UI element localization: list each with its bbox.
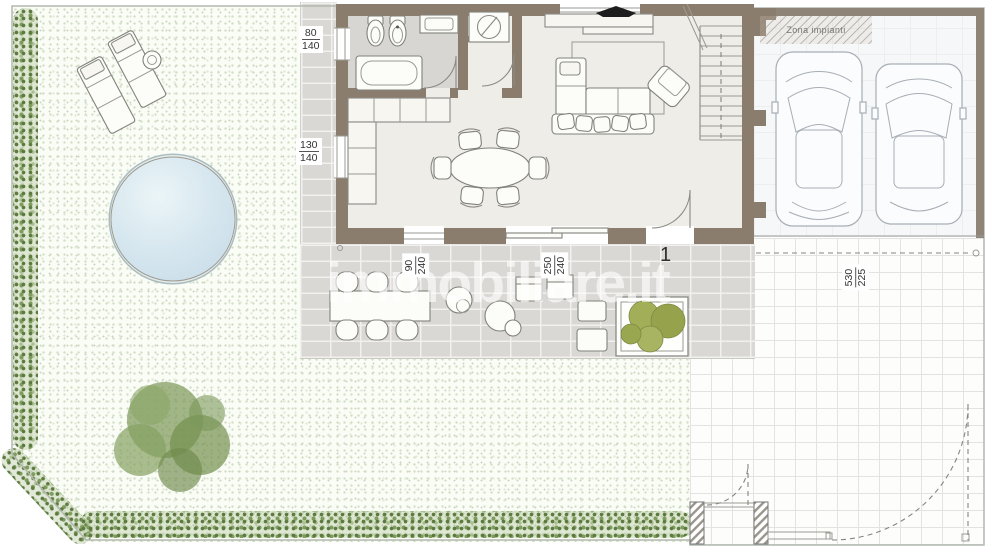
dim-kitchen-window: 130 140: [296, 138, 322, 165]
toilet-icon: [389, 16, 406, 46]
bathtub-icon: [356, 56, 422, 90]
driveway-gate: [768, 404, 969, 541]
dim-sliding-door: 250 240: [541, 253, 568, 279]
sliding-door: [506, 226, 608, 244]
pool-rim: [111, 157, 235, 281]
garden-tree: [114, 382, 230, 492]
boundary-marker: [973, 250, 979, 256]
tv-cabinet: [545, 14, 653, 34]
unit-number: 1: [660, 244, 671, 267]
sink-icon: [420, 15, 458, 33]
window-living: [404, 226, 444, 244]
armchair: [646, 64, 692, 109]
systems-zone-label: Zona impianti: [786, 25, 845, 35]
door-terrace: [646, 190, 694, 244]
gate-pillar: [690, 502, 768, 544]
dim-living-window: 90 240: [402, 254, 429, 278]
door-hall: [482, 54, 514, 86]
car: [872, 64, 966, 224]
dim-bath-window: 80 140: [299, 26, 323, 53]
floor-plan: Zona impianti: [0, 0, 992, 557]
stairs: [683, 4, 742, 140]
garden-side-table: [143, 51, 161, 69]
systems-zone: Zona impianti: [760, 16, 872, 44]
watermark: immobiliare.it: [225, 250, 770, 316]
dim-driveway: 530 225: [842, 265, 869, 291]
car: [772, 52, 866, 226]
boiler-icon: [469, 12, 509, 42]
window-bath: [334, 28, 350, 60]
sofa: [552, 58, 654, 134]
bidet-icon: [367, 16, 384, 46]
pedestrian-gate: [704, 464, 754, 507]
kitchen-counter: [348, 98, 450, 204]
dining-table: [450, 148, 530, 188]
